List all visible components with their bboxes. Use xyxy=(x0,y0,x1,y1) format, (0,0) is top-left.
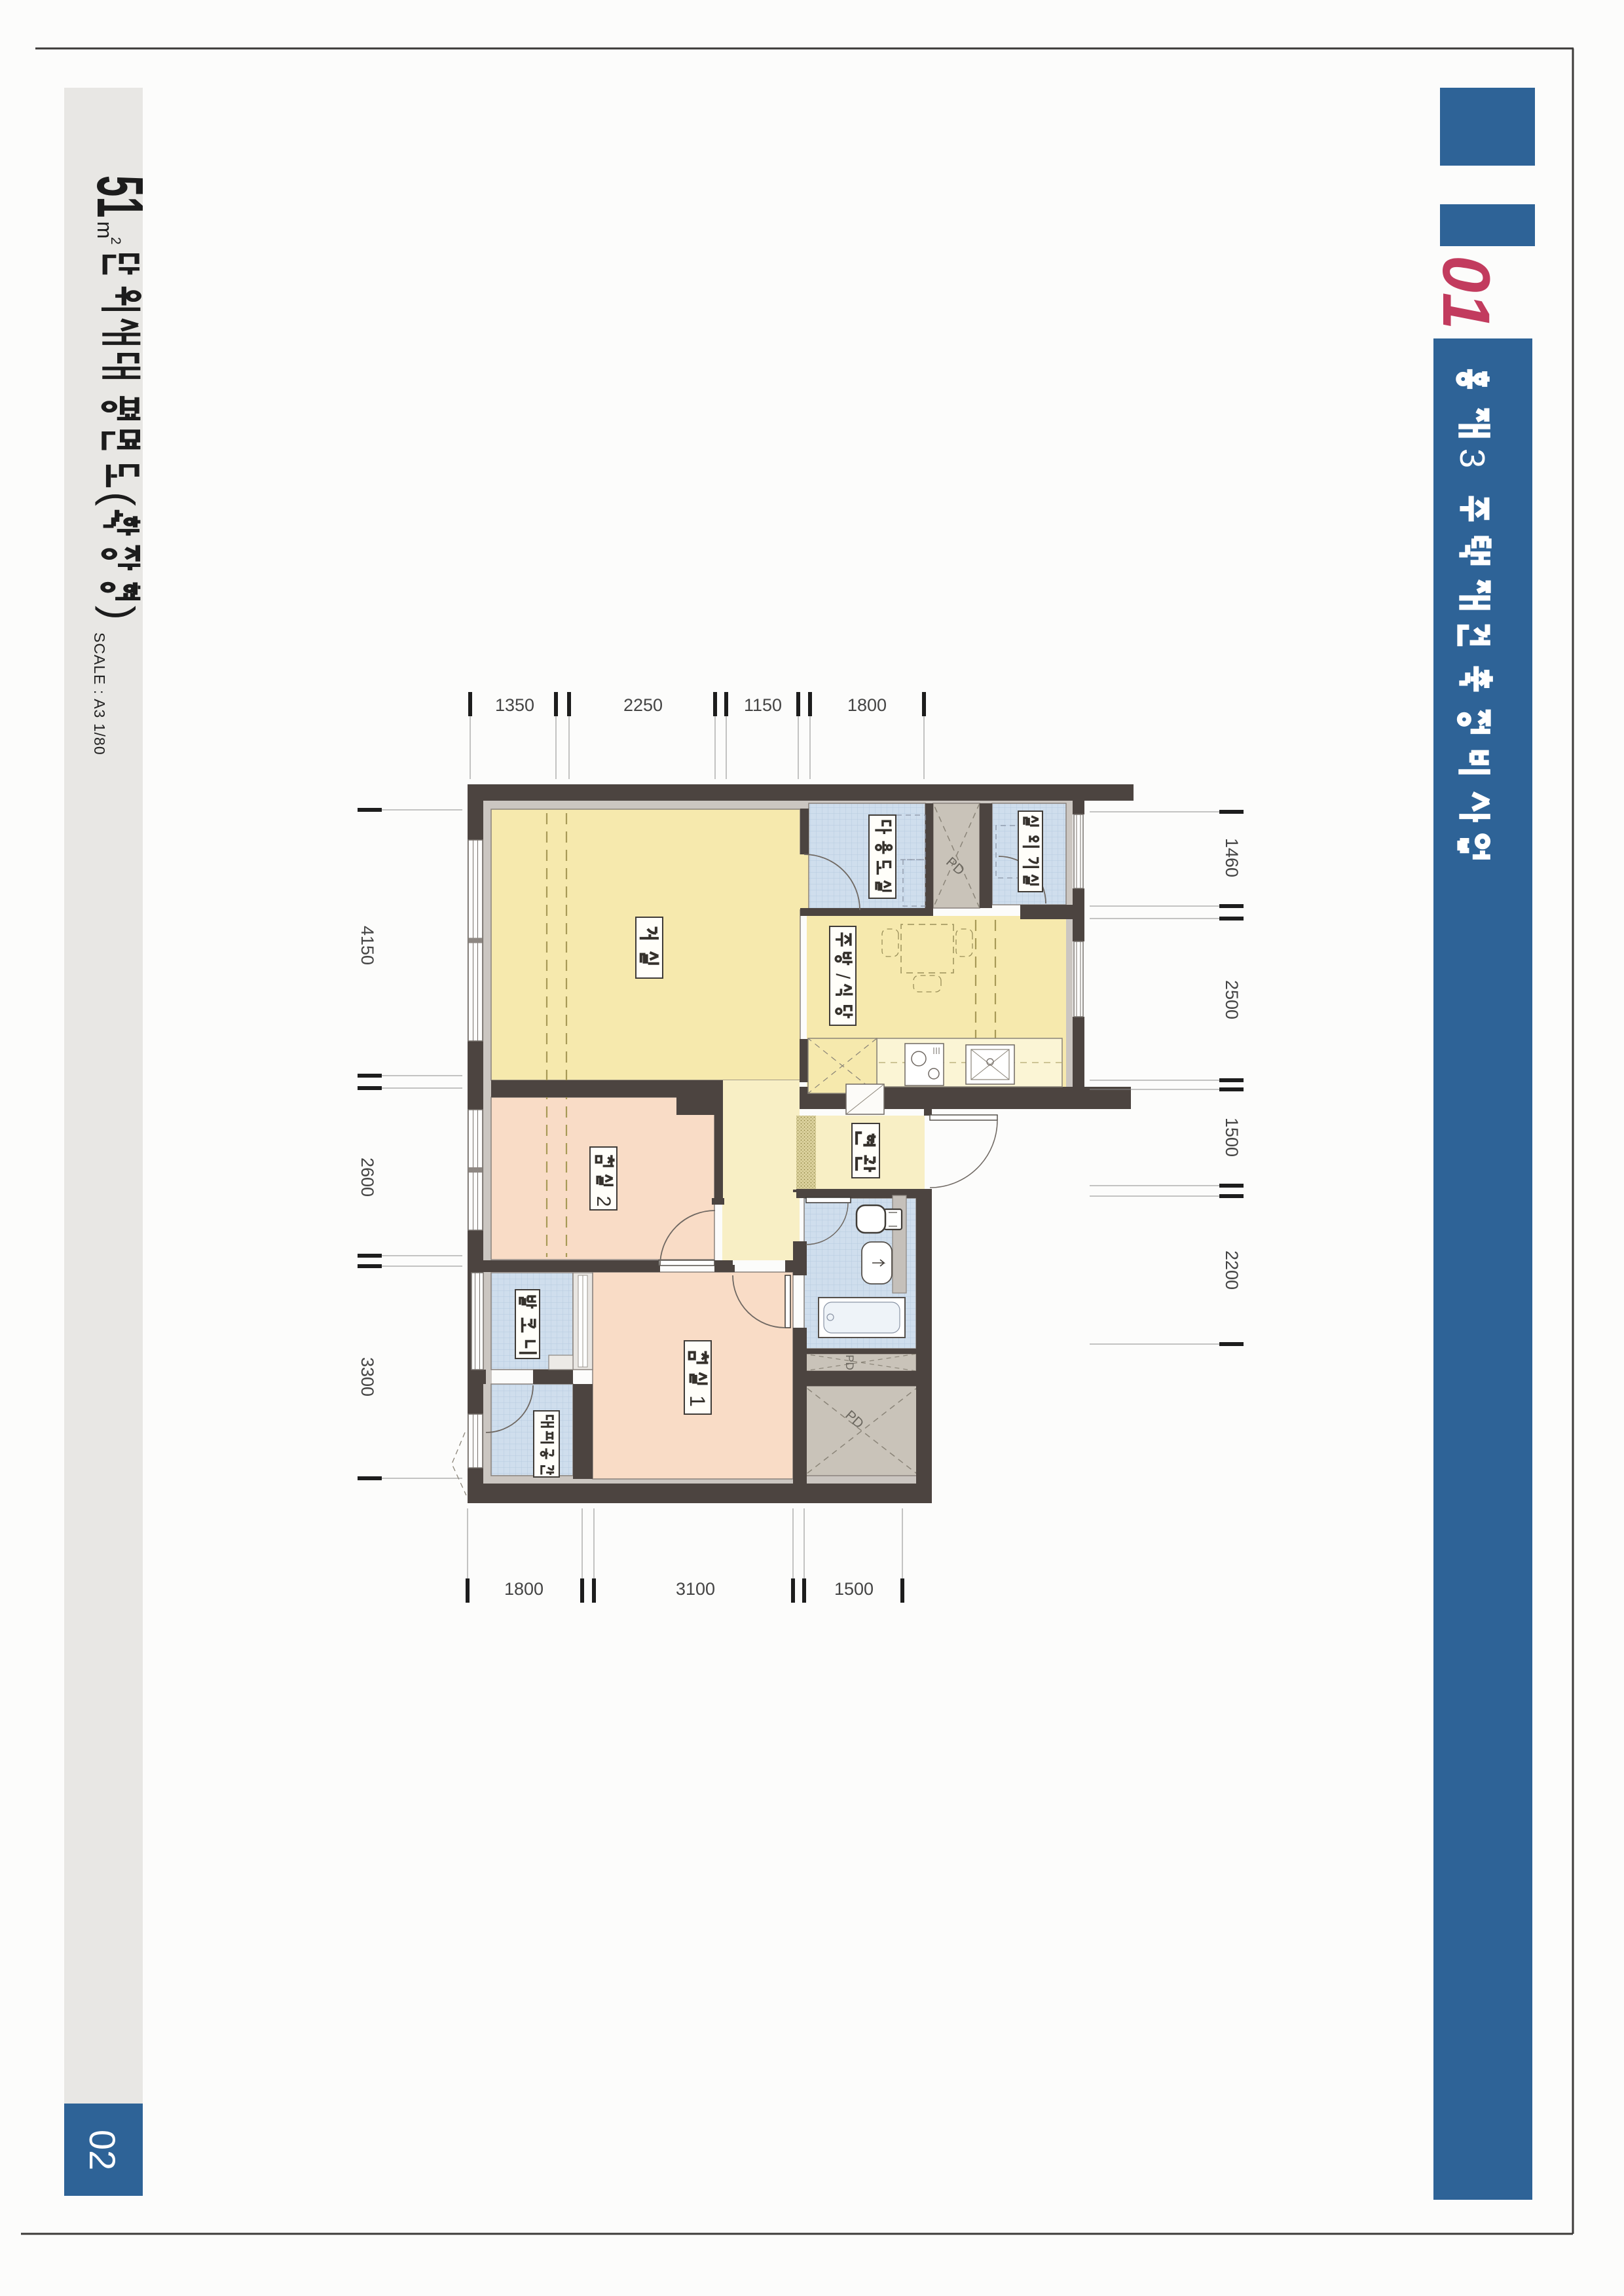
svg-text:1800: 1800 xyxy=(847,695,887,715)
svg-text:01: 01 xyxy=(1429,255,1504,329)
svg-text:02: 02 xyxy=(82,2130,123,2170)
svg-text:1: 1 xyxy=(686,1395,709,1407)
svg-text:51: 51 xyxy=(83,175,156,218)
svg-text:): ) xyxy=(95,606,143,620)
svg-text:1500: 1500 xyxy=(1222,1118,1242,1157)
svg-text:2: 2 xyxy=(108,237,123,245)
svg-text:1350: 1350 xyxy=(495,695,534,715)
svg-text:2200: 2200 xyxy=(1222,1250,1242,1290)
svg-text:2600: 2600 xyxy=(358,1157,377,1197)
svg-text:4150: 4150 xyxy=(358,926,377,965)
svg-text:1500: 1500 xyxy=(834,1579,874,1599)
svg-text:2250: 2250 xyxy=(623,695,663,715)
svg-text:2500: 2500 xyxy=(1222,980,1242,1019)
svg-text:1460: 1460 xyxy=(1222,838,1242,877)
svg-text:3100: 3100 xyxy=(676,1579,715,1599)
svg-text:SCALE : A3 1/80: SCALE : A3 1/80 xyxy=(91,632,108,756)
svg-text:m: m xyxy=(93,221,117,239)
svg-text:PD: PD xyxy=(843,1355,856,1370)
svg-text:3300: 3300 xyxy=(358,1357,377,1396)
svg-text:/: / xyxy=(832,974,853,979)
svg-text:2: 2 xyxy=(593,1196,614,1207)
svg-text:(: ( xyxy=(95,492,143,506)
svg-text:1800: 1800 xyxy=(504,1579,544,1599)
svg-text:3: 3 xyxy=(1452,448,1492,468)
svg-text:1150: 1150 xyxy=(744,695,782,715)
